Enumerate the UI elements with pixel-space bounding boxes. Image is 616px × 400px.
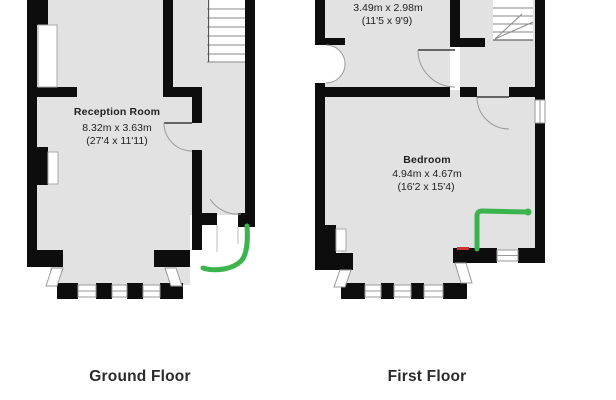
reception-room-label: Reception Room xyxy=(74,106,160,118)
first-floor-stairs xyxy=(493,0,533,40)
bedroom-size-metric: 4.94m x 4.67m xyxy=(392,168,461,180)
reception-room-size-metric: 8.32m x 3.63m xyxy=(82,122,151,134)
first-floor-plan xyxy=(315,0,545,299)
first-floor-floor xyxy=(325,0,535,285)
ground-floor-plan xyxy=(27,0,255,299)
first-floor-rear-window xyxy=(497,250,518,261)
top-room-size-imperial: (11'5 x 9'9) xyxy=(362,15,413,27)
bedroom-label: Bedroom xyxy=(403,154,451,166)
bedroom-size-imperial: (16'2 x 15'4) xyxy=(397,181,454,193)
ground-floor-stairs xyxy=(207,0,245,62)
ground-floor-green-annotation xyxy=(203,226,247,270)
first-floor-red-annotation xyxy=(457,247,469,250)
first-floor-alcove xyxy=(336,229,346,251)
ground-floor-title: Ground Floor xyxy=(89,368,190,386)
reception-room-size-imperial: (27'4 x 11'11) xyxy=(86,135,147,147)
top-room-size-metric: 3.49m x 2.98m xyxy=(353,2,422,14)
floorplan-drawing xyxy=(0,0,616,400)
floorplan-image: Reception Room 8.32m x 3.63m (27'4 x 11'… xyxy=(0,0,616,400)
first-floor-side-window xyxy=(535,100,545,123)
first-floor-title: First Floor xyxy=(388,368,467,386)
